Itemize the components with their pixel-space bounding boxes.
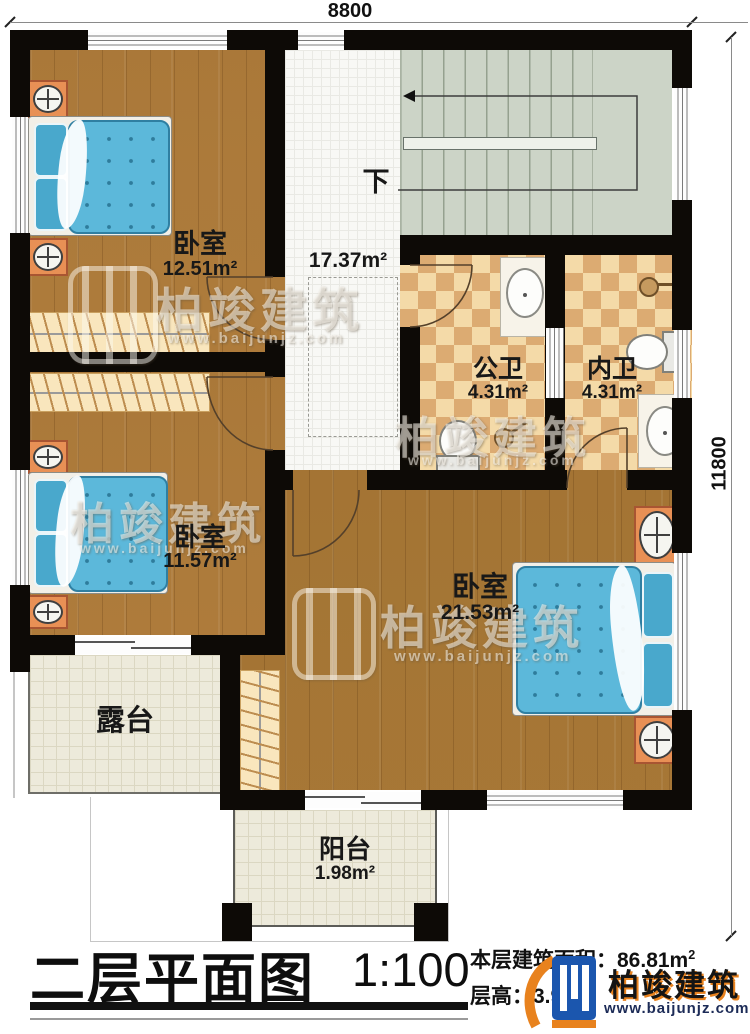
boundary-line-right bbox=[448, 810, 449, 942]
watermark-url: www.baijunjz.com bbox=[394, 648, 571, 665]
room-label-bath-private: 内卫 bbox=[562, 356, 662, 382]
sink-icon bbox=[506, 268, 544, 318]
nightstand bbox=[28, 238, 68, 276]
wall bbox=[672, 200, 692, 330]
balcony-post bbox=[414, 903, 448, 941]
wall bbox=[220, 790, 305, 810]
scale-label: 1:100 bbox=[352, 942, 470, 997]
pillow-icon bbox=[642, 642, 674, 708]
stair-handrail bbox=[403, 137, 597, 150]
wall bbox=[400, 235, 692, 255]
room-area-balcony: 1.98m² bbox=[300, 864, 390, 884]
wall bbox=[627, 470, 692, 490]
wall bbox=[367, 470, 567, 490]
window bbox=[674, 553, 690, 710]
wall bbox=[344, 30, 692, 50]
lamp-icon bbox=[33, 243, 63, 271]
window bbox=[12, 470, 28, 585]
sliding-door bbox=[305, 792, 421, 808]
room-area-bath-private: 4.31m² bbox=[562, 383, 662, 403]
wardrobe-hangers bbox=[28, 373, 210, 412]
stair-down-label: 下 bbox=[358, 168, 394, 196]
brand-logo-icon bbox=[522, 952, 608, 1034]
room-area-hallway: 17.37m² bbox=[300, 250, 396, 272]
wall bbox=[623, 790, 692, 810]
wall bbox=[421, 790, 487, 810]
lamp-icon bbox=[639, 721, 675, 759]
title-underline-thin bbox=[30, 1018, 468, 1020]
lamp-icon bbox=[639, 511, 675, 559]
window bbox=[487, 792, 623, 809]
room-area-bedroom-top-left: 12.51m² bbox=[138, 259, 262, 280]
wall bbox=[672, 710, 692, 790]
lamp-icon bbox=[33, 445, 63, 469]
window bbox=[674, 330, 690, 398]
watermark-logo-icon bbox=[292, 588, 376, 680]
dimension-top-value: 8800 bbox=[317, 0, 383, 23]
wall bbox=[227, 30, 298, 50]
title-underline bbox=[30, 1002, 468, 1010]
watermark-url: www.baijunjz.com bbox=[168, 330, 345, 347]
room-label-balcony: 阳台 bbox=[305, 836, 385, 863]
room-area-bath-public: 4.31m² bbox=[448, 383, 548, 403]
room-label-bedroom-master: 卧室 bbox=[420, 572, 540, 601]
room-label-terrace: 露台 bbox=[60, 706, 190, 736]
lamp-icon bbox=[33, 85, 63, 113]
wall bbox=[672, 30, 692, 88]
nightstand bbox=[28, 80, 68, 118]
window bbox=[12, 117, 28, 233]
shower-head-icon bbox=[639, 277, 659, 297]
pillow-icon bbox=[642, 572, 674, 638]
lamp-icon bbox=[33, 600, 63, 624]
wall bbox=[10, 635, 75, 655]
window bbox=[88, 32, 227, 49]
brand-website: www.baijunjz.com bbox=[604, 1000, 749, 1017]
window bbox=[298, 32, 344, 49]
brand-name: 柏竣建筑 bbox=[608, 960, 740, 1005]
room-label-bath-public: 公卫 bbox=[448, 356, 548, 382]
room-label-bedroom-top-left: 卧室 bbox=[145, 230, 255, 258]
floor-plan-canvas: 柏竣建筑 www.baijunjz.com 柏竣建筑 www.baijunjz.… bbox=[0, 0, 750, 1034]
terrace-outer-line bbox=[13, 655, 15, 798]
wardrobe-hangers bbox=[240, 670, 280, 794]
dimension-right-value: 11800 bbox=[709, 434, 732, 494]
nightstand bbox=[28, 440, 68, 474]
boundary-line-left bbox=[90, 797, 91, 942]
room-area-bedroom-master: 21.53m² bbox=[415, 602, 545, 624]
sliding-door bbox=[75, 637, 191, 654]
nightstand bbox=[28, 595, 68, 629]
wall bbox=[400, 255, 420, 265]
hall-stair-divider bbox=[400, 50, 401, 235]
wall bbox=[285, 470, 293, 490]
room-label-bedroom-bottom-left: 卧室 bbox=[145, 524, 255, 551]
wall bbox=[10, 30, 30, 117]
room-area-bedroom-bottom-left: 11.57m² bbox=[138, 551, 262, 572]
wall bbox=[220, 635, 240, 810]
watermark-url: www.baijunjz.com bbox=[408, 452, 577, 468]
wall bbox=[265, 50, 285, 277]
wall bbox=[10, 585, 30, 672]
window bbox=[674, 88, 690, 200]
watermark-logo-icon bbox=[68, 266, 158, 364]
wall bbox=[265, 450, 285, 635]
